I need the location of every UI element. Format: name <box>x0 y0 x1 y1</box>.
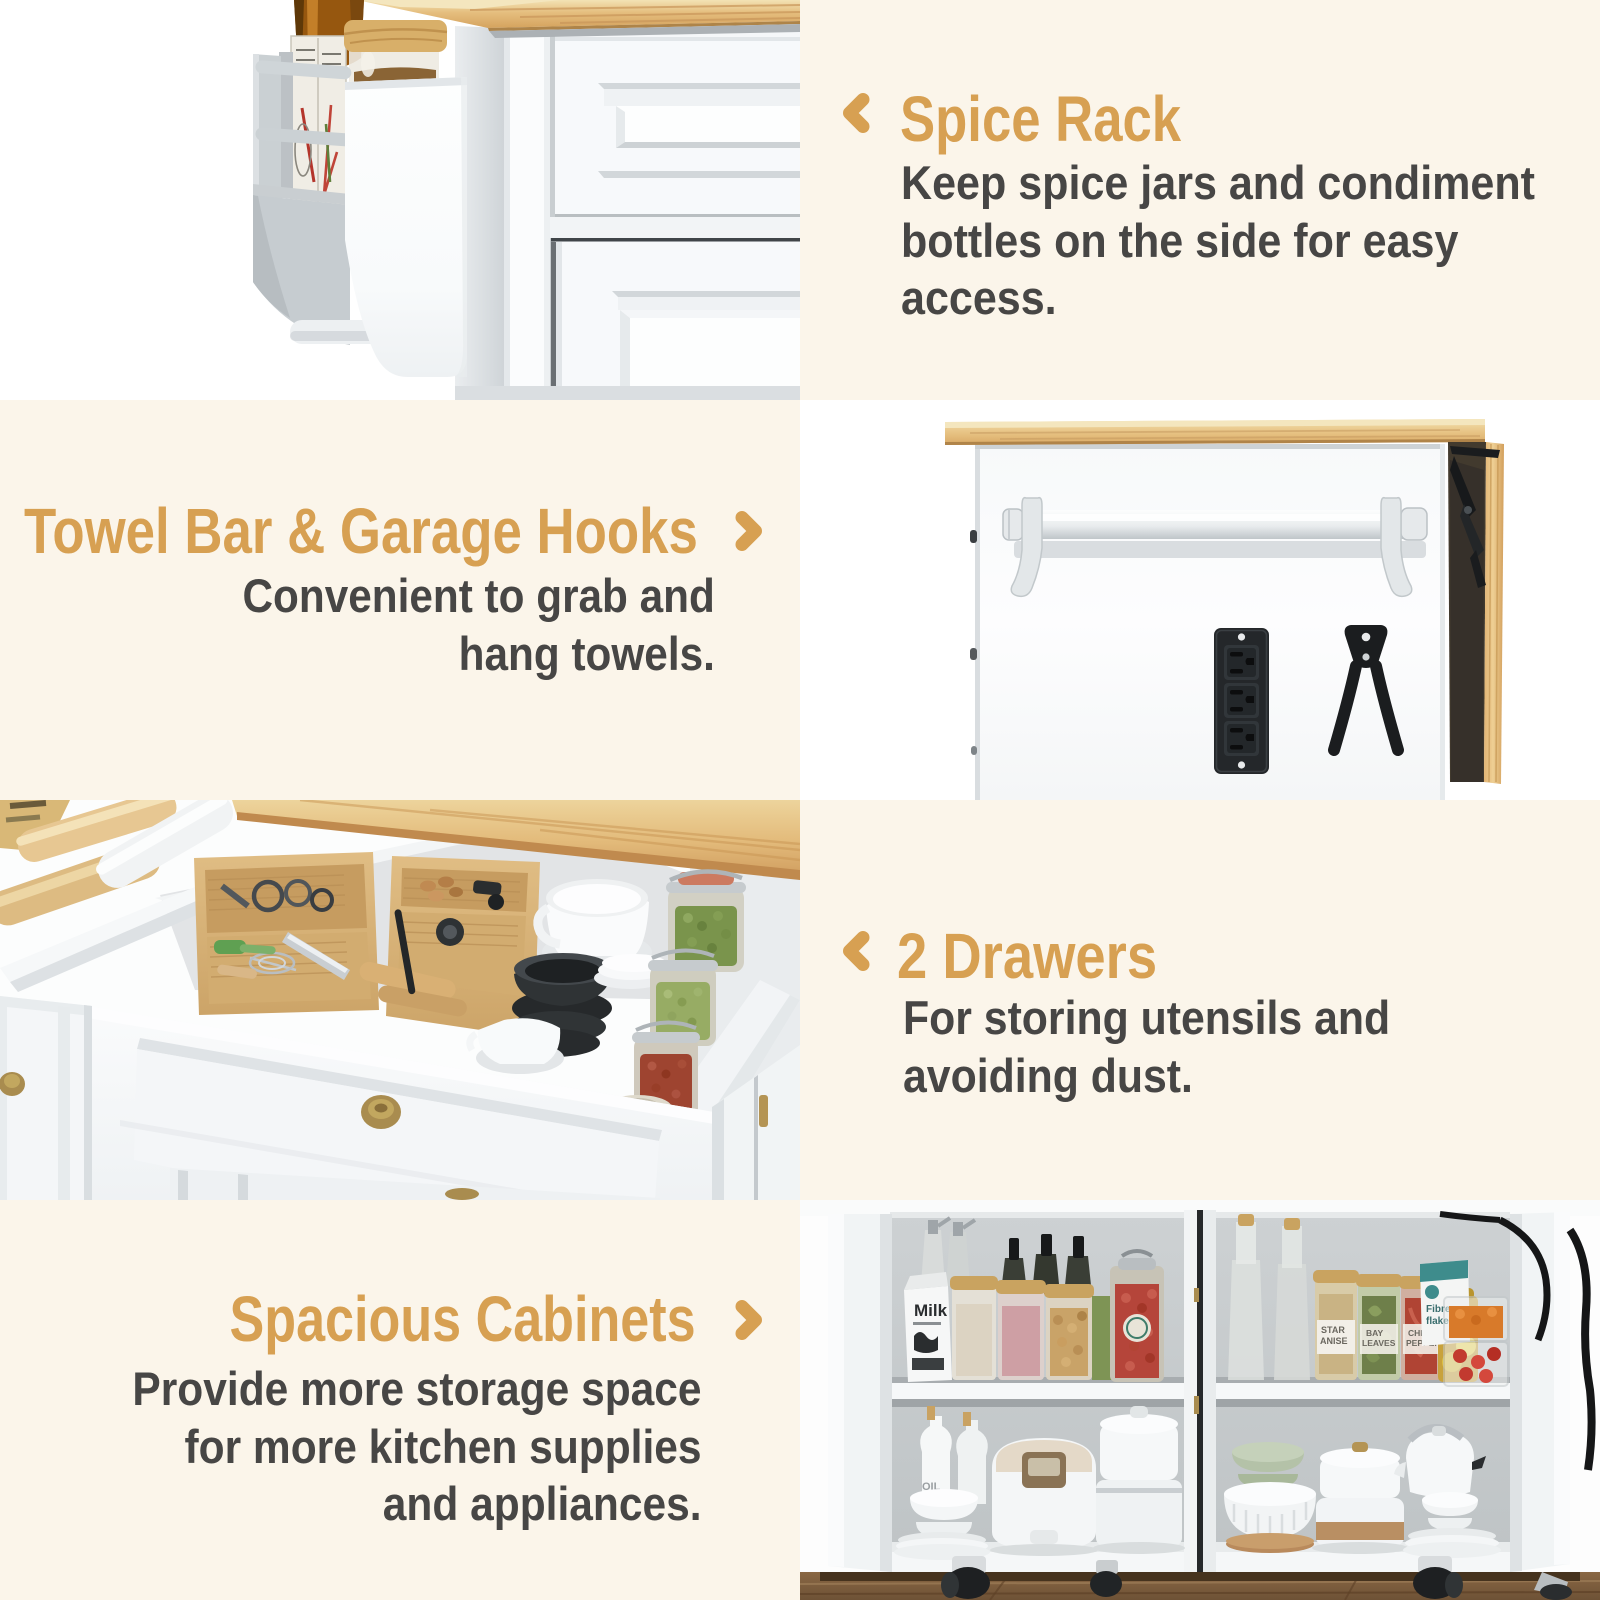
svg-text:Milk: Milk <box>914 1301 948 1320</box>
svg-text:BAY: BAY <box>1366 1328 1383 1338</box>
svg-text:LEAVES: LEAVES <box>1362 1338 1396 1348</box>
svg-text:STAR: STAR <box>1321 1325 1345 1335</box>
svg-text:ANISE: ANISE <box>1320 1336 1348 1346</box>
